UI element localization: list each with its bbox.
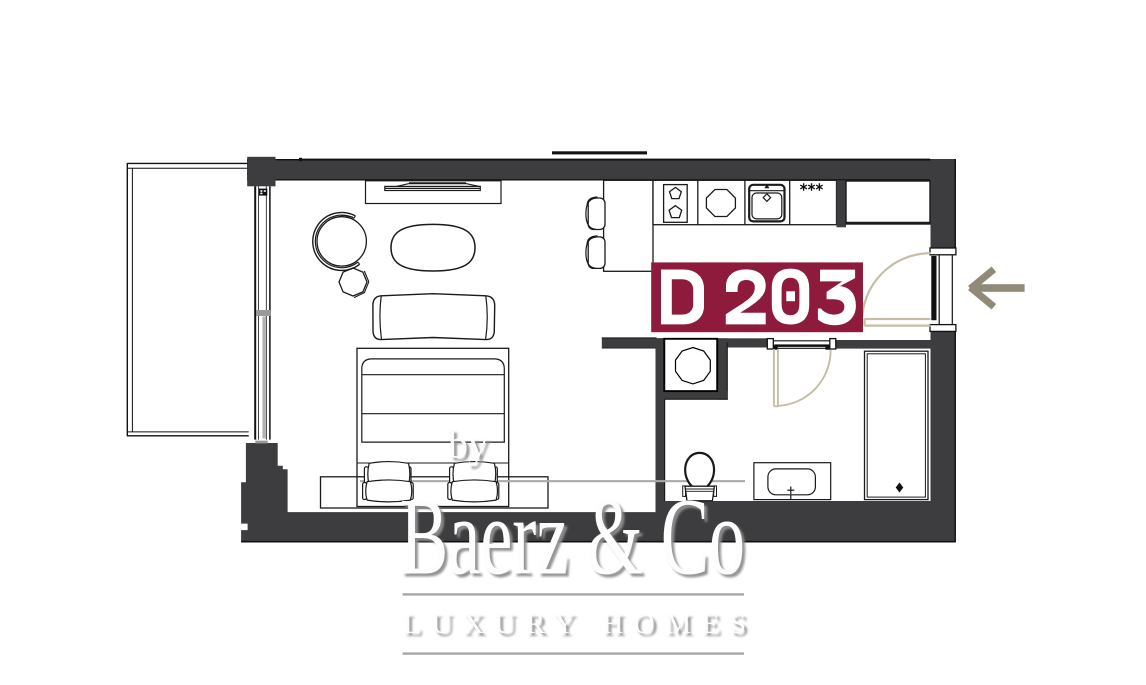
svg-text:Baerz & Co: Baerz & Co bbox=[400, 476, 745, 598]
svg-text:LUXURY HOMES: LUXURY HOMES bbox=[403, 608, 746, 640]
svg-text:by: by bbox=[448, 422, 488, 467]
